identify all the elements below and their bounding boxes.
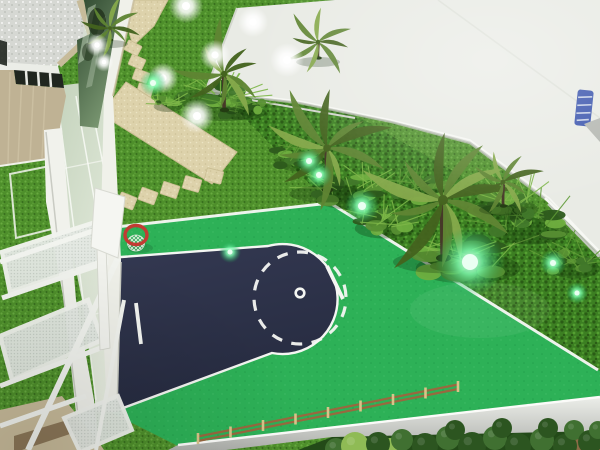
led-light-green <box>358 202 366 210</box>
led-light-white <box>249 18 256 25</box>
shrub-foliage <box>578 264 591 272</box>
scene <box>0 0 600 450</box>
shrub-foliage <box>541 231 566 238</box>
tree-highlight <box>542 422 548 428</box>
led-light-green <box>575 291 580 296</box>
fence-post <box>457 381 460 392</box>
tree-highlight <box>593 424 598 429</box>
tree-highlight <box>347 437 355 445</box>
fence-post <box>327 407 330 418</box>
tree-highlight <box>417 438 425 446</box>
tree-highlight <box>558 438 565 445</box>
tree-highlight <box>510 438 518 446</box>
led-light-green <box>150 80 156 86</box>
tree-highlight <box>371 436 378 443</box>
palm-base-tuft <box>220 108 229 113</box>
led-light-green <box>316 172 322 178</box>
shrub-foliage <box>273 161 287 169</box>
tree-highlight <box>449 424 455 430</box>
palm-crown <box>108 26 112 30</box>
led-light-white <box>193 112 201 120</box>
led-light-green <box>550 260 556 266</box>
tree-highlight <box>464 437 472 445</box>
palm-crown <box>221 71 227 77</box>
shrub-foliage <box>158 96 168 100</box>
window-slot <box>0 40 7 66</box>
tree-highlight <box>568 424 574 430</box>
scale-model-photo <box>0 0 600 450</box>
led-light-white <box>102 60 107 65</box>
fence-post <box>424 388 427 399</box>
shrub-blade <box>146 104 161 105</box>
tree-highlight <box>583 434 590 441</box>
led-light-white <box>94 42 99 47</box>
led-light-white <box>211 51 218 58</box>
tree-highlight <box>395 433 402 440</box>
hedge-tree <box>538 418 558 438</box>
tree-highlight <box>496 422 502 428</box>
shrub-foliage <box>396 221 413 232</box>
led-light-white <box>182 2 190 10</box>
hedge-tree <box>391 429 413 450</box>
tree-highlight <box>329 442 336 449</box>
fence-post <box>392 394 395 405</box>
fence-post <box>359 401 362 412</box>
led-light-green <box>462 254 478 270</box>
led-light-green <box>228 250 233 255</box>
hedge-tree <box>492 418 512 438</box>
